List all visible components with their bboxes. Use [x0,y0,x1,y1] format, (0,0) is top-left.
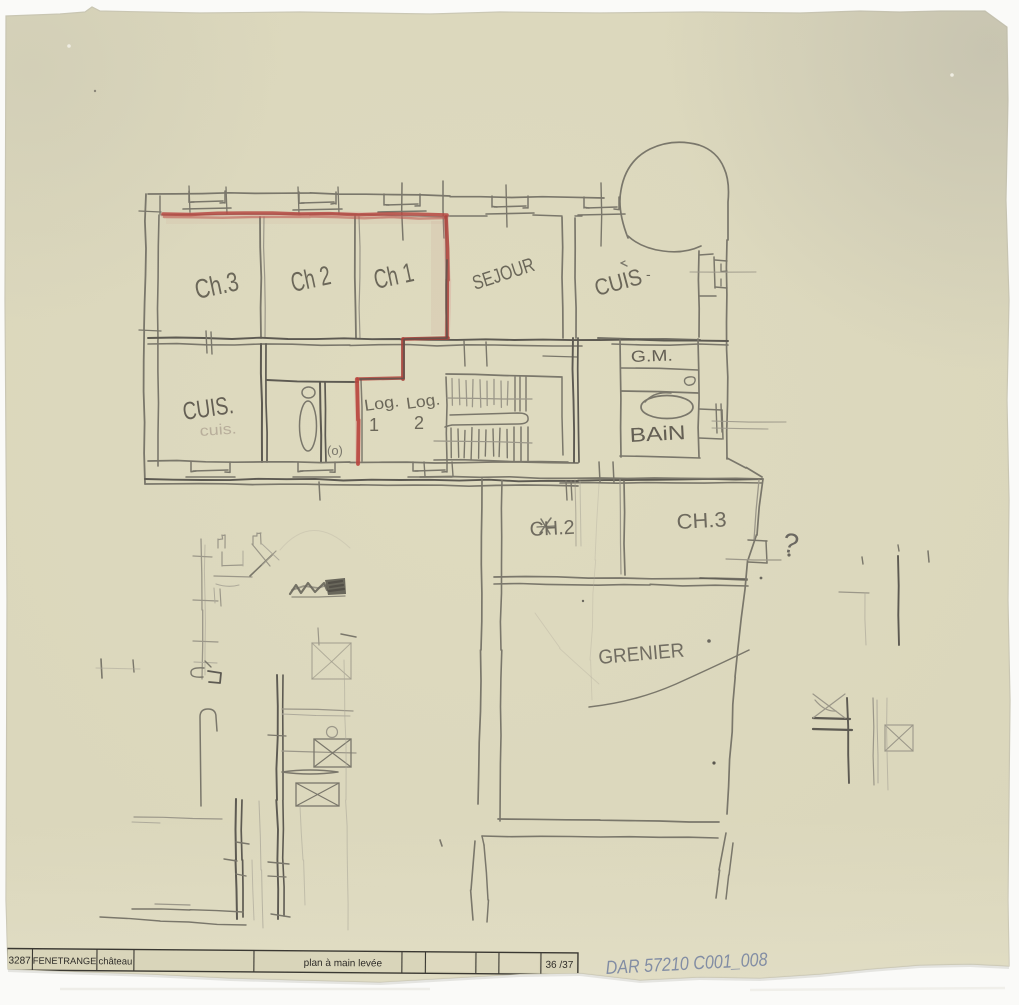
svg-text:G.M.: G.M. [631,348,674,366]
svg-text:BAiN: BAiN [629,422,686,447]
svg-text:2: 2 [414,413,424,433]
svg-text:CH.2: CH.2 [529,517,575,541]
svg-text:plan à main levée: plan à main levée [304,958,383,970]
svg-text:36 /37: 36 /37 [545,960,573,971]
svg-text:(o): (o) [327,443,343,458]
svg-text:cuis.: cuis. [199,420,237,440]
svg-text:FENETRANGE: FENETRANGE [33,956,97,966]
svg-text:CH.3: CH.3 [676,508,727,534]
svg-text:-: - [646,266,651,282]
svg-text:château: château [98,956,132,967]
svg-text:1: 1 [369,415,379,435]
svg-text:3287: 3287 [8,956,31,967]
